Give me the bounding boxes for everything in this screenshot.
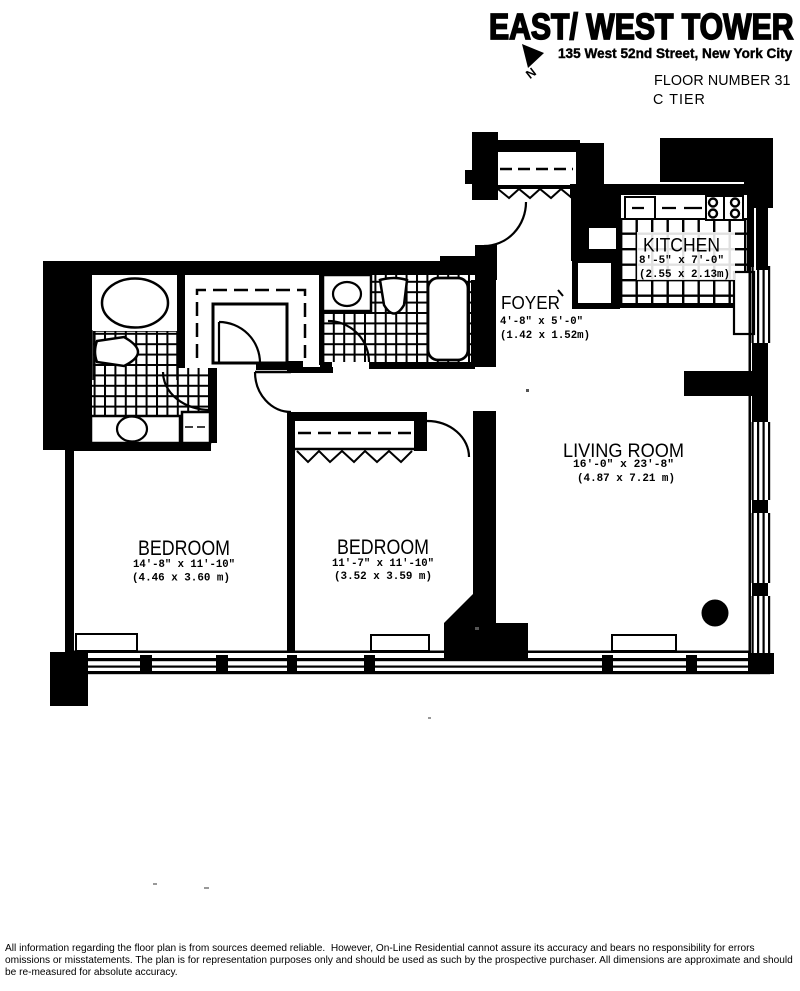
svg-text:BEDROOM: BEDROOM (337, 536, 429, 559)
svg-text:8'-5" x 7'-0": 8'-5" x 7'-0" (639, 255, 724, 267)
svg-text:N: N (523, 65, 539, 82)
svg-text:(1.42 x 1.52m): (1.42 x 1.52m) (500, 330, 590, 342)
svg-text:(4.46 x 3.60 m): (4.46 x 3.60 m) (132, 573, 230, 585)
svg-text:16'-0" x 23'-8": 16'-0" x 23'-8" (573, 459, 674, 471)
svg-text:(3.52 x 3.59 m): (3.52 x 3.59 m) (334, 571, 432, 583)
svg-text:BEDROOM: BEDROOM (138, 537, 230, 560)
svg-text:11'-7" x 11'-10": 11'-7" x 11'-10" (332, 558, 434, 570)
svg-text:KITCHEN: KITCHEN (643, 235, 720, 257)
svg-text:(2.55 x 2.13m): (2.55 x 2.13m) (639, 269, 730, 281)
svg-text:FOYER: FOYER (501, 293, 560, 313)
svg-text:14'-8" x 11'-10": 14'-8" x 11'-10" (133, 559, 235, 571)
svg-text:(4.87 x 7.21 m): (4.87 x 7.21 m) (577, 473, 675, 485)
svg-text:4'-8" x 5'-0": 4'-8" x 5'-0" (500, 316, 583, 328)
